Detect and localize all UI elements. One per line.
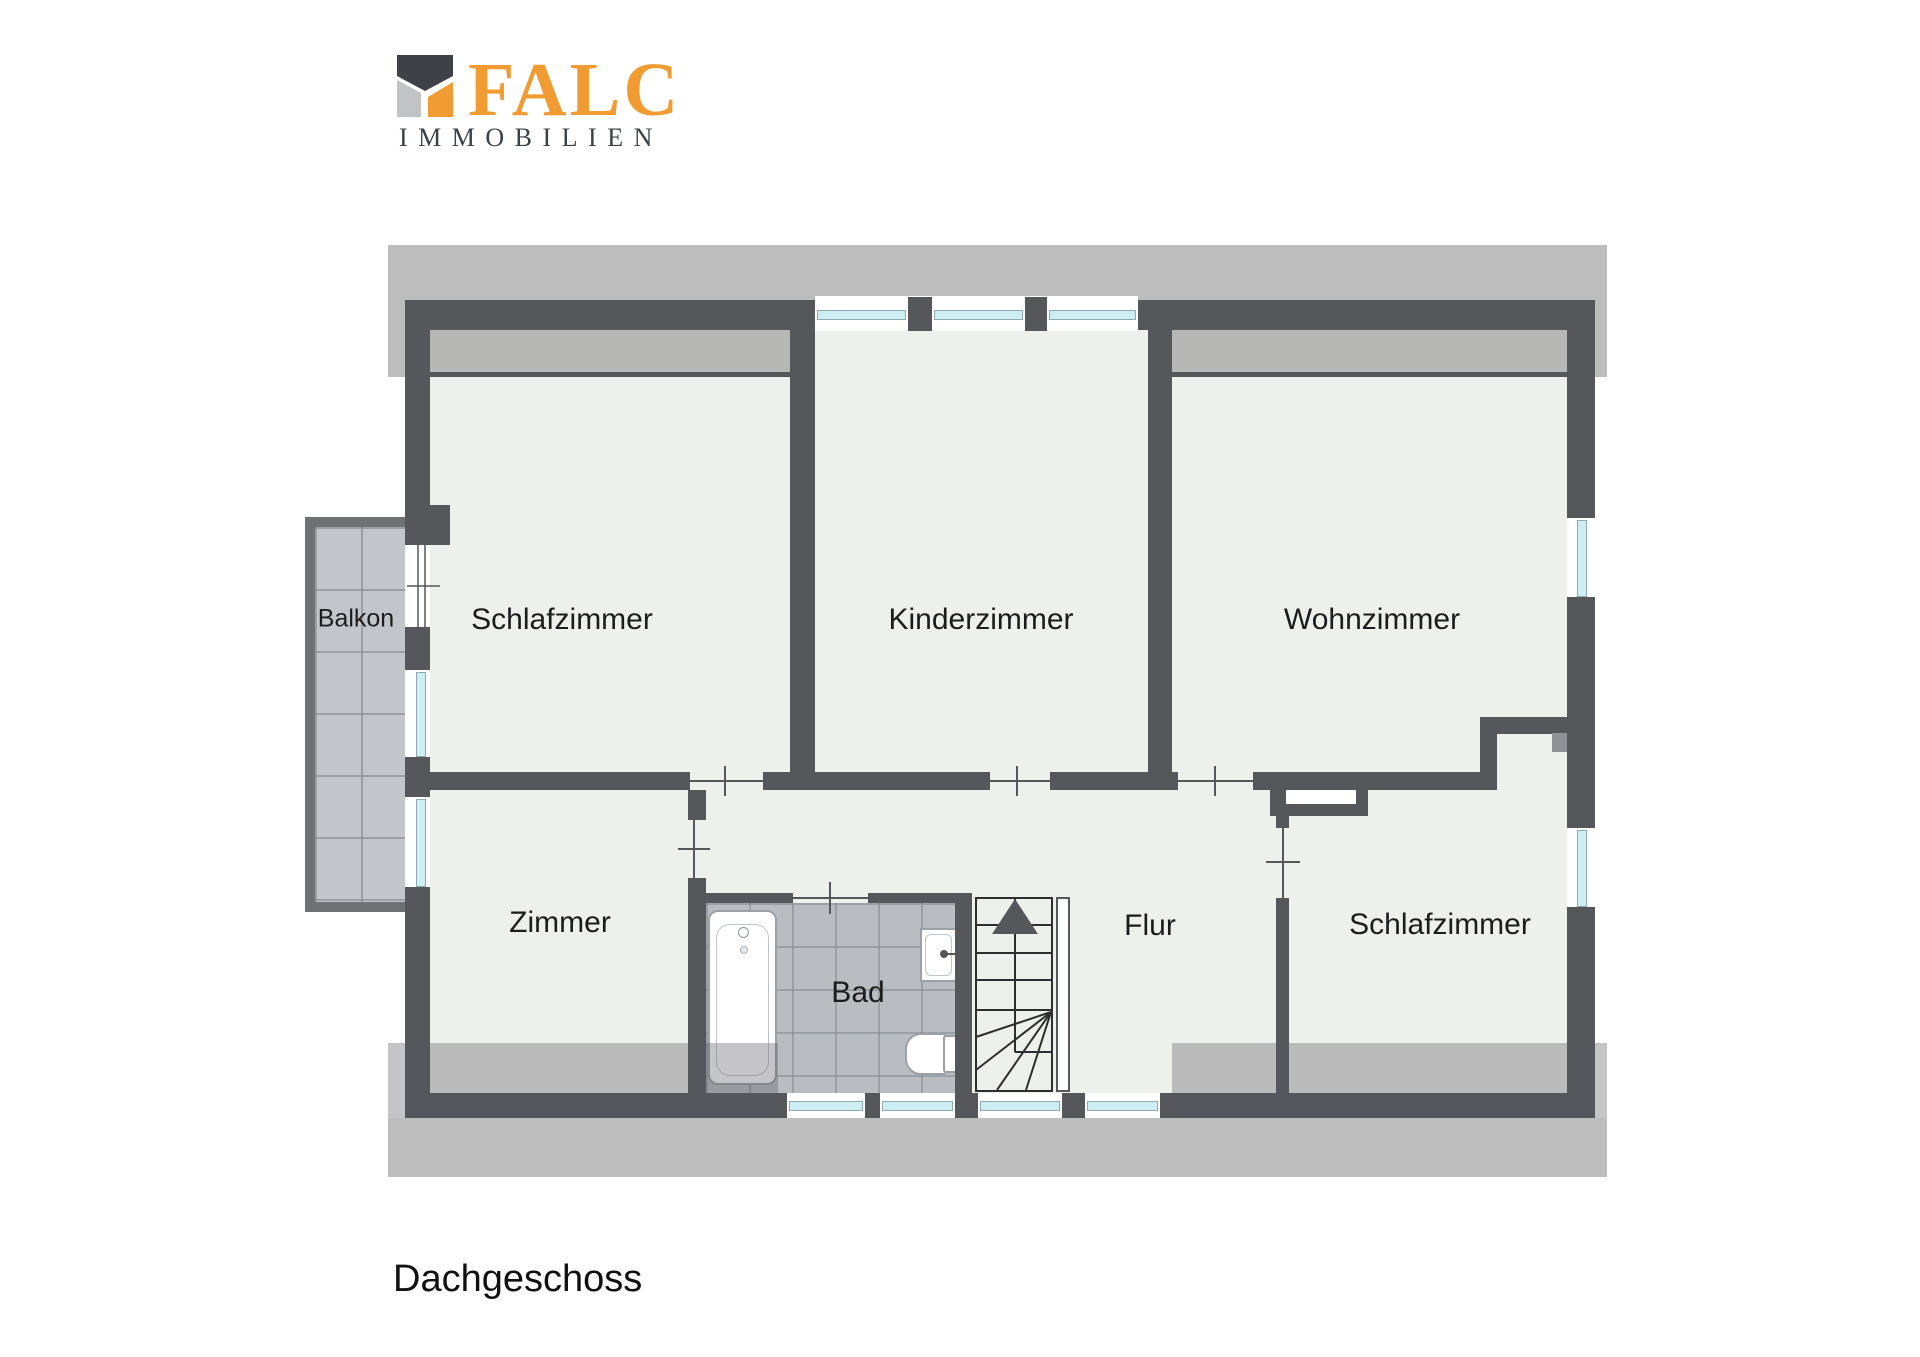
- room-label-flur: Flur: [1124, 909, 1176, 943]
- room-label-wohnzimmer: Wohnzimmer: [1284, 603, 1460, 637]
- door-kinderzimmer: [990, 766, 1050, 796]
- room-label-schlafzimmer-right: Schlafzimmer: [1349, 908, 1531, 942]
- door-schlafzimmer-right: [1266, 828, 1300, 898]
- stairs-up-arrow-icon: [992, 899, 1038, 934]
- door-schlafzimmer-left: [690, 766, 763, 796]
- room-label-kinderzimmer: Kinderzimmer: [888, 603, 1073, 637]
- floor-title: Dachgeschoss: [393, 1258, 642, 1301]
- plan-lines-overlay: [0, 0, 1920, 1357]
- floorplan-page: FALC IMMOBILIEN: [0, 0, 1920, 1357]
- room-label-bad: Bad: [831, 976, 884, 1010]
- room-label-zimmer: Zimmer: [509, 906, 611, 940]
- room-label-schlafzimmer-left: Schlafzimmer: [471, 603, 653, 637]
- door-balkon: [407, 545, 440, 627]
- door-bad: [793, 882, 868, 914]
- door-wohnzimmer: [1178, 766, 1253, 796]
- door-zimmer: [678, 820, 710, 878]
- room-label-balkon: Balkon: [318, 605, 394, 634]
